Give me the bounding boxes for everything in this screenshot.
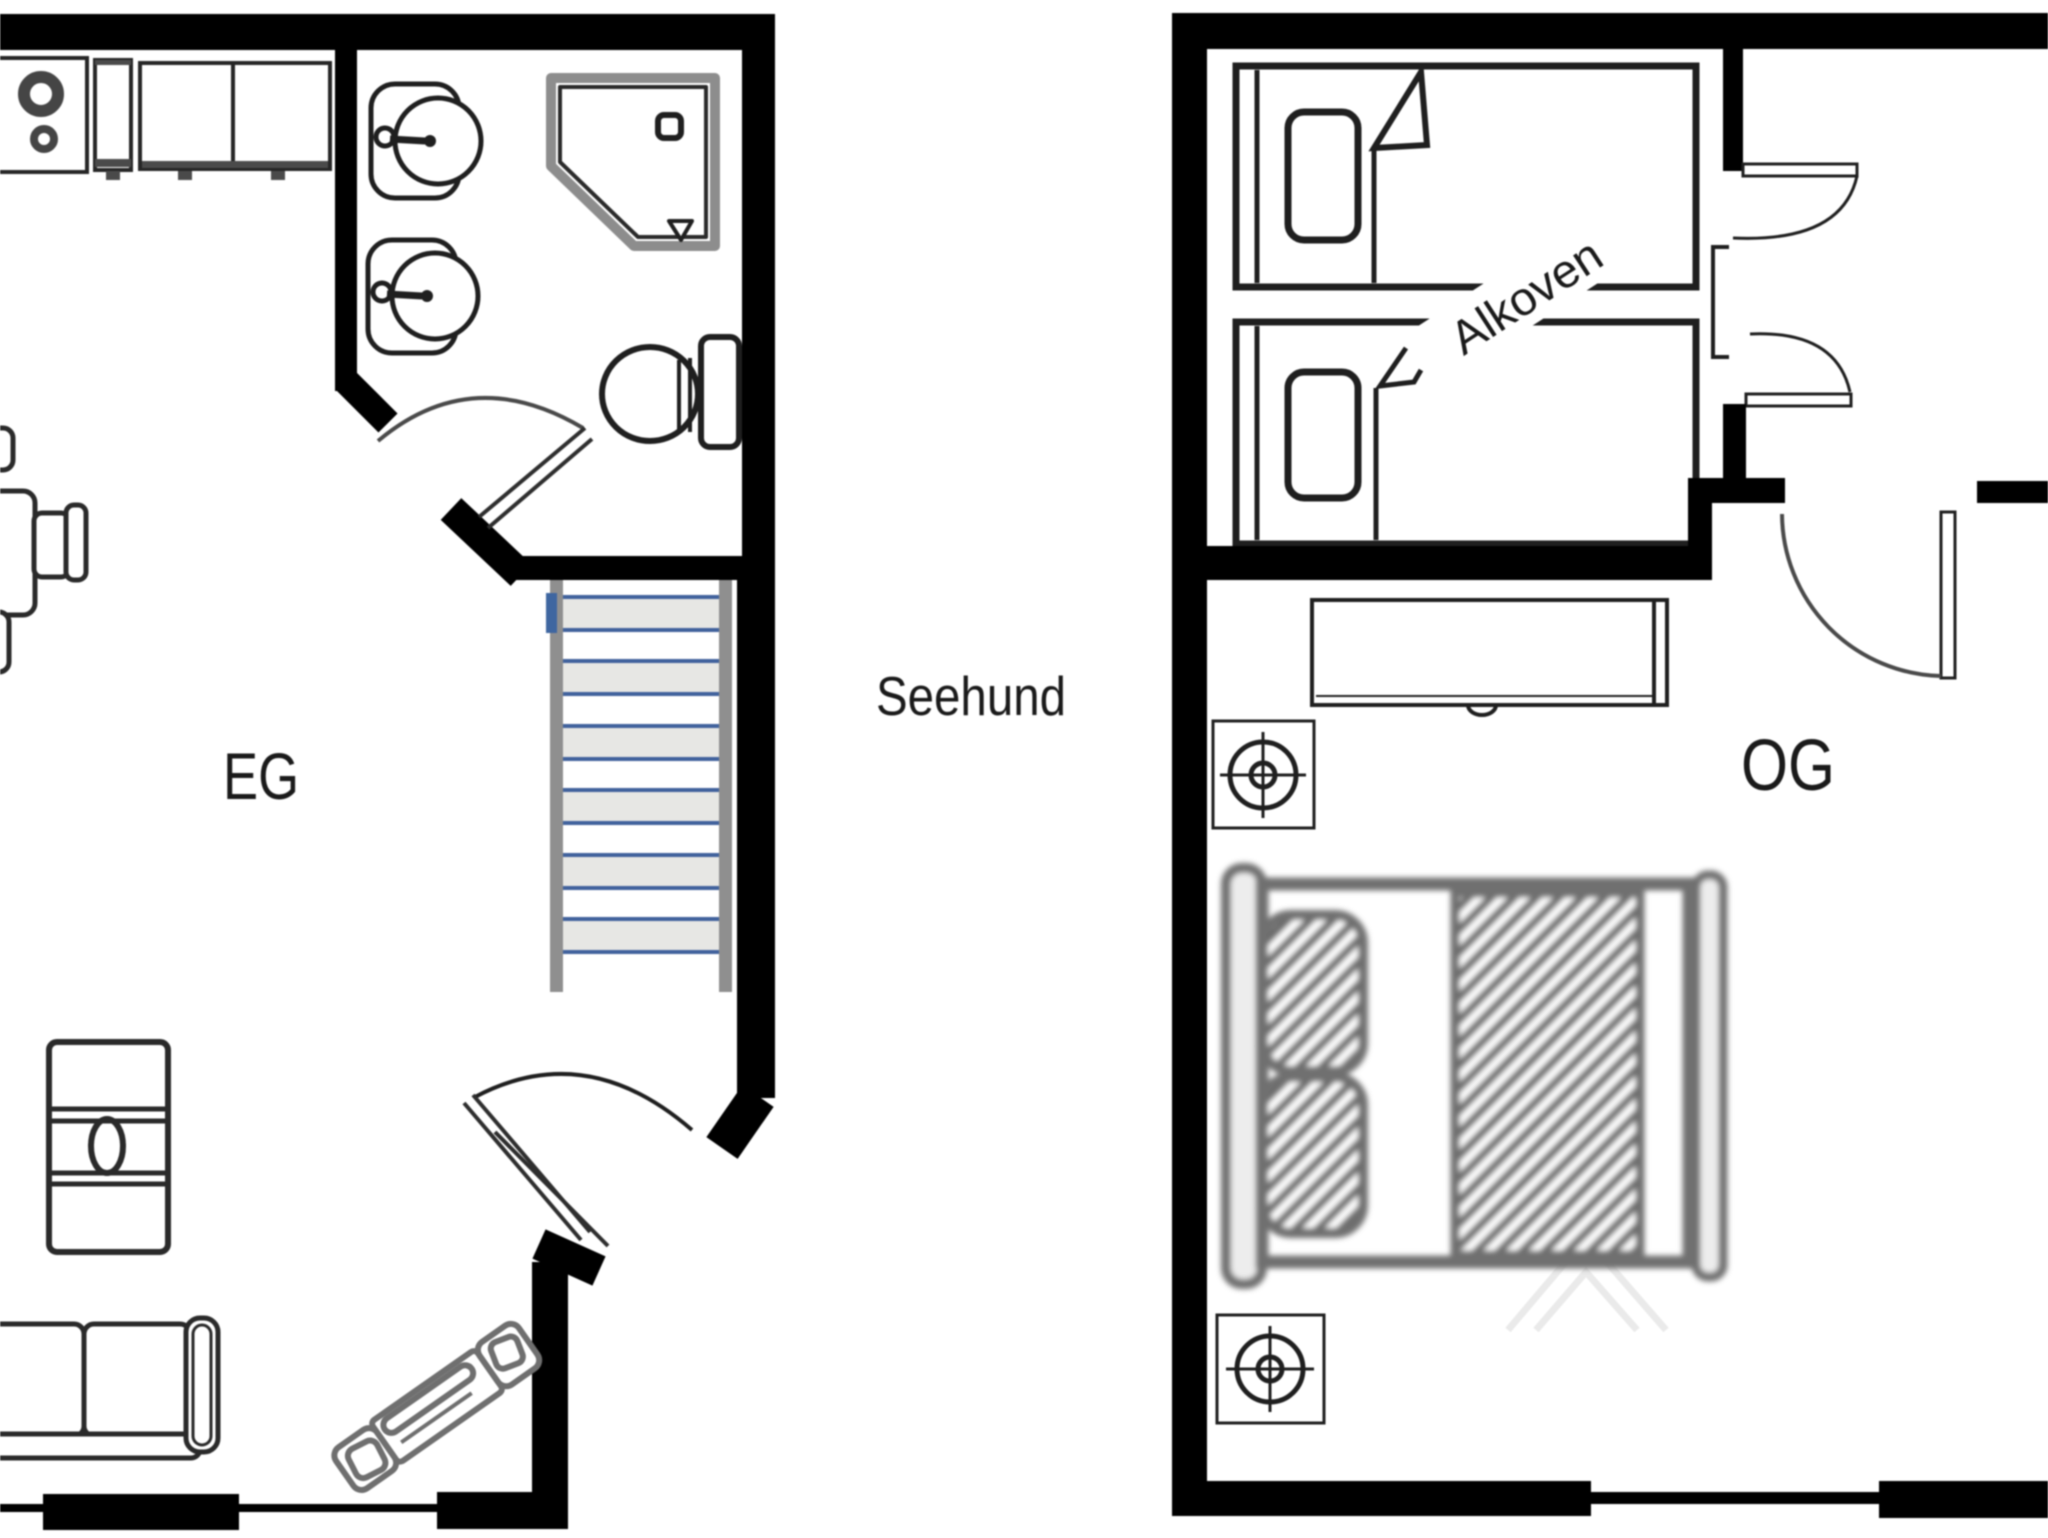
svg-text:EG: EG — [223, 739, 299, 813]
svg-text:Seehund: Seehund — [876, 665, 1066, 727]
svg-text:OG: OG — [1741, 726, 1835, 806]
